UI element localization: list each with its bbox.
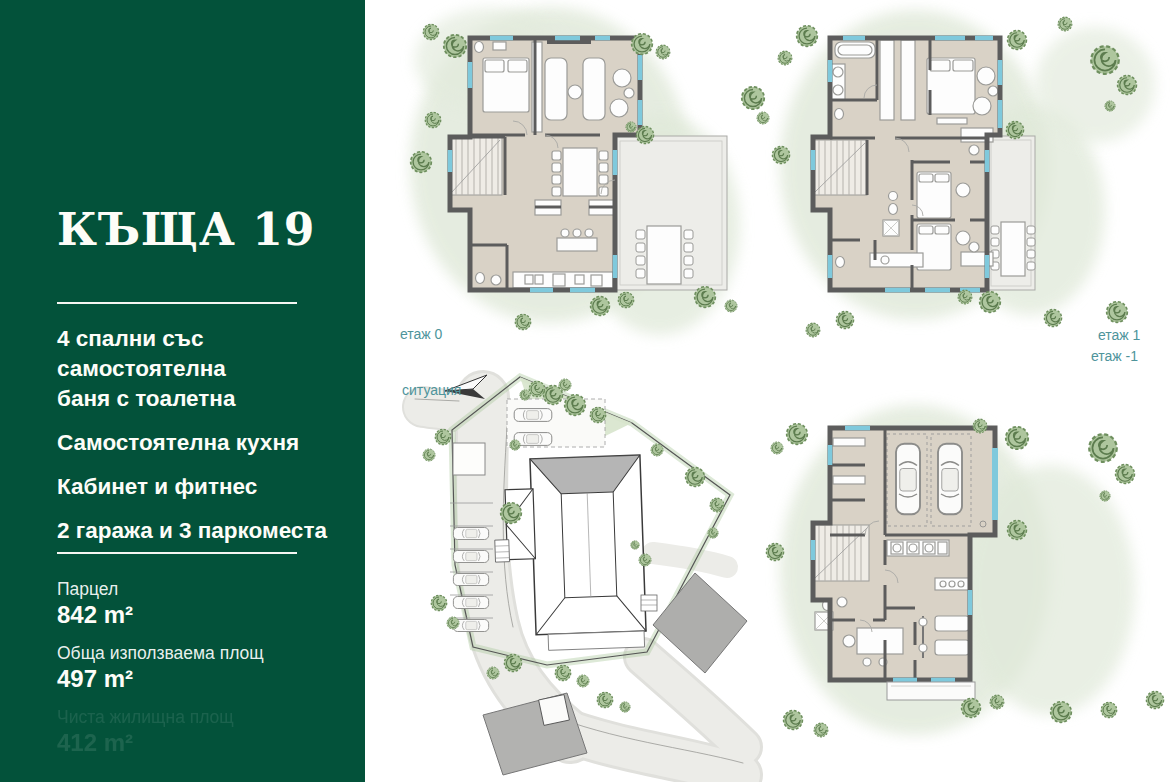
floorplan-ground (395, 0, 770, 350)
tree-icon (1006, 427, 1028, 449)
tree-icon (990, 695, 1004, 709)
stat-label: Обща използваема площ (57, 642, 342, 664)
tree-icon (618, 292, 633, 307)
tree-icon (710, 498, 724, 512)
tree-icon (487, 667, 499, 679)
stat-value: 497 m² (57, 664, 342, 694)
tree-icon (1008, 31, 1027, 50)
tree-icon (504, 654, 521, 671)
tree-icon (559, 379, 571, 391)
tree-icon (444, 35, 466, 57)
site-plan-drawing (395, 355, 770, 782)
feature-office-gym: Кабинет и фитнес (57, 472, 342, 502)
stat-value: 412 m² (57, 728, 342, 758)
stat-total-area: Обща използваема площ 497 m² (57, 642, 342, 694)
feature-list: 4 спални със самостоятелна баня с тоалет… (57, 324, 342, 560)
tree-icon (431, 595, 446, 610)
terrace (615, 136, 727, 290)
plan-label-basement: етаж -1 (1091, 348, 1138, 364)
site-plan (395, 355, 770, 782)
tree-icon (814, 723, 828, 737)
tree-icon (980, 292, 1001, 313)
tree-icon (423, 24, 438, 39)
tree-icon (1044, 309, 1061, 326)
tree-icon (766, 543, 783, 560)
tree-icon (520, 390, 530, 400)
floorplan-ground-drawing (395, 0, 770, 350)
tree-icon (501, 503, 522, 524)
tree-icon (577, 675, 589, 687)
tree-icon (787, 424, 808, 445)
tree-icon (1091, 46, 1119, 74)
tree-icon (772, 146, 789, 163)
tree-icon (836, 311, 853, 328)
car-icon (453, 528, 488, 540)
tree-icon (529, 381, 544, 396)
car-icon (938, 444, 962, 515)
stat-label: Парцел (57, 578, 342, 600)
plan-label-floor1: етаж 1 (1098, 327, 1140, 343)
car-icon (453, 551, 488, 563)
tree-icon (1089, 434, 1117, 462)
stairs (813, 140, 867, 195)
tree-icon (1006, 121, 1023, 138)
tree-icon (725, 300, 737, 312)
tree-icon (686, 468, 705, 487)
car-icon (453, 597, 488, 609)
plan-label-floor0: етаж 0 (400, 326, 442, 342)
tree-icon (565, 395, 586, 416)
feature-garage-parking: 2 гаража и 3 паркоместа (57, 516, 342, 546)
stat-net-living-area: Чиста жилищна площ 412 m² (57, 706, 342, 758)
tree-icon (962, 699, 981, 718)
tree-icon (590, 407, 605, 422)
tree-icon (784, 711, 803, 730)
tree-icon (631, 541, 640, 550)
tree-icon (1105, 101, 1115, 111)
tree-icon (639, 554, 651, 566)
tree-icon (656, 45, 670, 59)
tree-icon (597, 692, 612, 707)
sidebar: КЪЩА 19 4 спални със самостоятелна баня … (0, 0, 365, 782)
stat-label: Чиста жилищна площ (57, 706, 342, 728)
tree-icon (708, 528, 718, 538)
stat-value: 842 m² (57, 600, 342, 630)
tree-icon (620, 702, 630, 712)
porch (887, 682, 975, 700)
plans-pane: етаж 0 етаж 1 ситуация етаж -1 (365, 0, 1172, 782)
tree-icon (1058, 17, 1072, 31)
tree-icon (742, 87, 764, 109)
divider-top (57, 302, 297, 304)
floorplan-basement (765, 390, 1172, 782)
tree-icon (651, 444, 663, 456)
tree-icon (1146, 691, 1163, 708)
car-icon (896, 444, 920, 515)
tree-icon (1116, 465, 1135, 484)
stat-plot: Парцел 842 m² (57, 578, 342, 630)
tree-icon (778, 51, 792, 65)
car-icon (514, 409, 552, 422)
stats-list: Парцел 842 m² Обща използваема площ 497 … (57, 578, 342, 770)
tree-icon (806, 323, 820, 337)
tree-icon (636, 126, 653, 143)
tree-icon (1118, 76, 1137, 95)
tree-icon (632, 34, 653, 55)
tree-icon (447, 617, 459, 629)
tree-icon (797, 26, 818, 47)
terrace (987, 136, 1035, 290)
brochure-page: КЪЩА 19 4 спални със самостоятелна баня … (0, 0, 1172, 782)
stairs (450, 137, 502, 195)
tree-icon (1100, 491, 1110, 501)
feature-bedrooms: 4 спални със самостоятелна баня с тоалет… (57, 324, 342, 414)
tree-icon (423, 449, 435, 461)
tree-icon (435, 429, 450, 444)
tree-icon (411, 152, 432, 173)
tree-icon (958, 290, 972, 304)
car-icon (453, 574, 488, 586)
tree-icon (771, 442, 783, 454)
plan-label-site: ситуация (402, 382, 461, 398)
tree-icon (695, 287, 716, 308)
tree-icon (555, 665, 570, 680)
tree-icon (510, 440, 520, 450)
stairs (813, 525, 869, 581)
tree-icon (425, 112, 440, 127)
floorplan-first (765, 0, 1172, 350)
tree-icon (1051, 702, 1072, 723)
tree-icon (973, 419, 987, 433)
tree-icon (626, 122, 636, 132)
tree-icon (515, 314, 530, 329)
divider-bottom (57, 552, 297, 554)
feature-kitchen: Самостоятелна кухня (57, 428, 342, 458)
tree-icon (591, 297, 610, 316)
floorplan-basement-drawing (765, 390, 1172, 782)
tree-icon (1101, 702, 1116, 717)
tree-icon (1008, 521, 1027, 540)
floorplan-first-drawing (765, 0, 1172, 350)
house-title: КЪЩА 19 (57, 204, 337, 257)
tree-icon (1107, 302, 1128, 323)
